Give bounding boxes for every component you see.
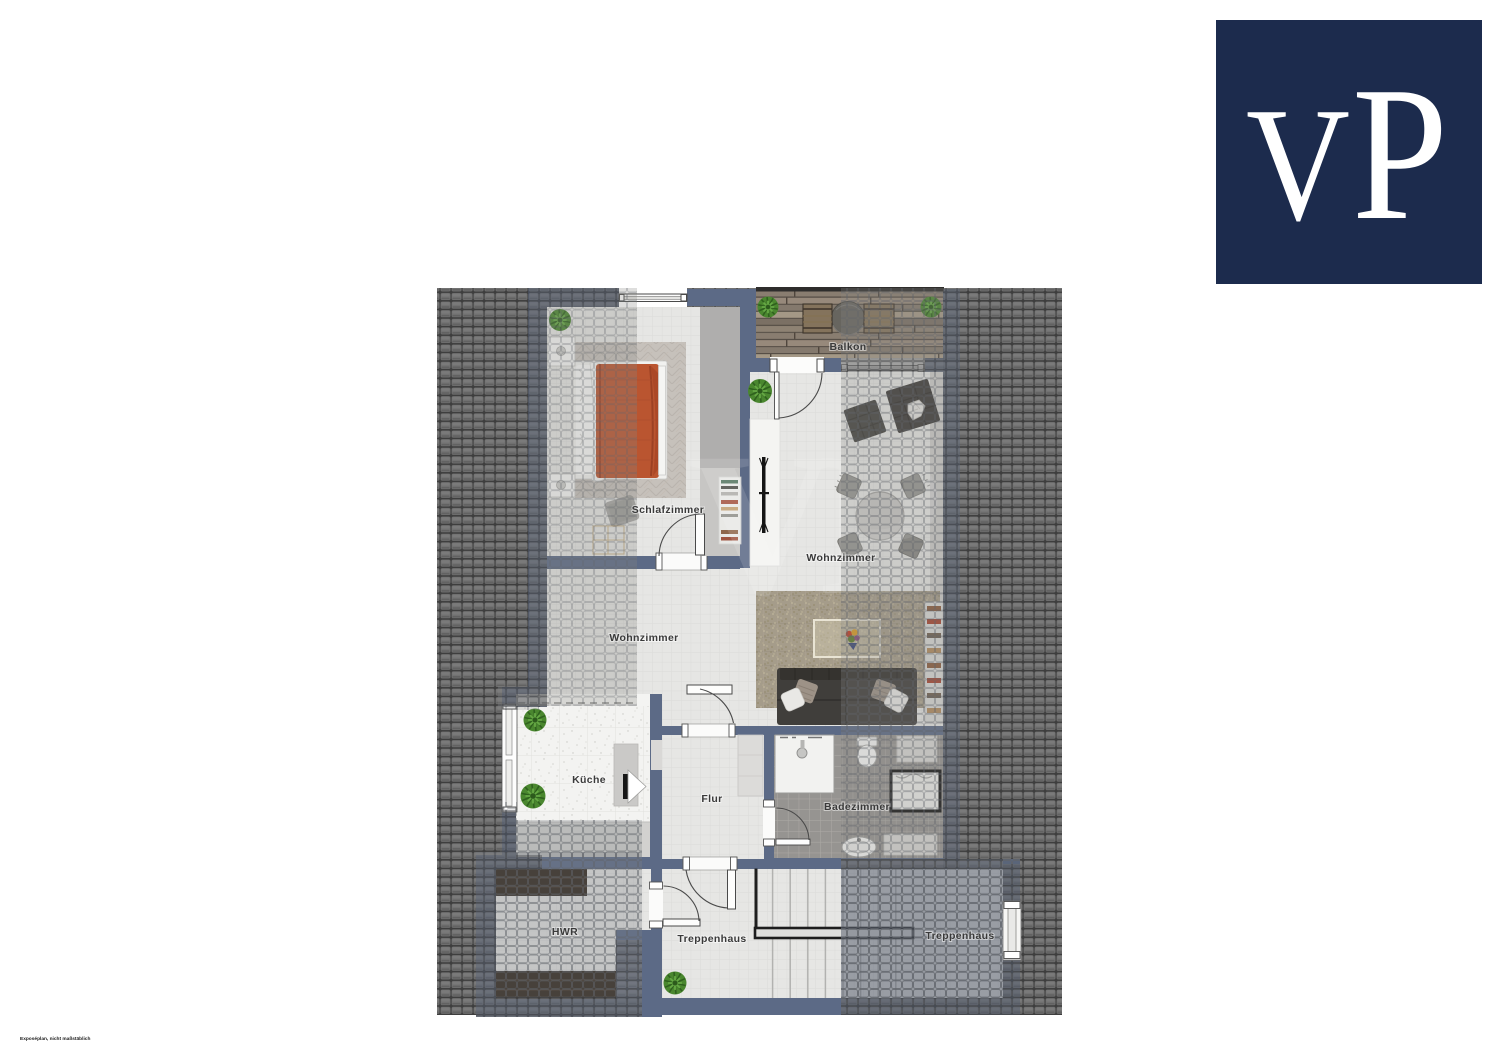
svg-text:Flur: Flur [701, 793, 722, 805]
svg-text:V: V [1246, 75, 1350, 255]
svg-text:P: P [1352, 47, 1448, 260]
svg-text:HWR: HWR [552, 926, 578, 938]
svg-text:Treppenhaus: Treppenhaus [925, 930, 994, 942]
svg-text:Wohnzimmer: Wohnzimmer [609, 632, 678, 644]
svg-text:Wohnzimmer: Wohnzimmer [806, 552, 875, 564]
svg-text:Treppenhaus: Treppenhaus [677, 933, 746, 945]
svg-text:Badezimmer: Badezimmer [824, 801, 890, 813]
svg-text:Balkon: Balkon [829, 341, 866, 353]
svg-text:Schlafzimmer: Schlafzimmer [632, 504, 704, 516]
svg-text:Exposéplan, nicht maßstäblich: Exposéplan, nicht maßstäblich [20, 1036, 90, 1042]
svg-text:Küche: Küche [572, 774, 606, 786]
